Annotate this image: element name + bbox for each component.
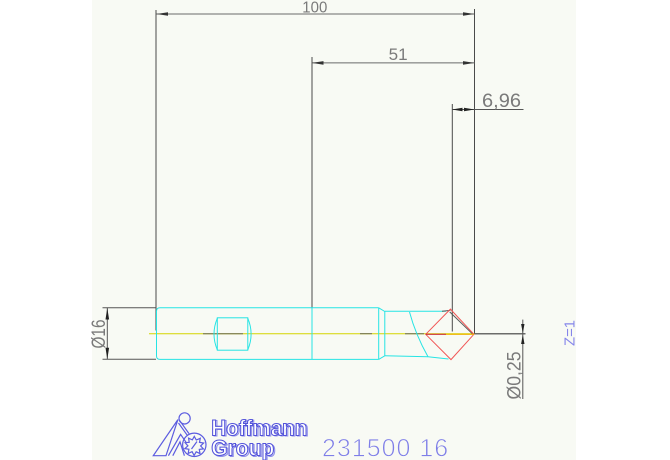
svg-text:Ø0,25: Ø0,25 <box>505 352 526 400</box>
svg-text:100: 100 <box>302 0 327 17</box>
svg-text:Ø16: Ø16 <box>89 320 110 349</box>
svg-text:231500 16: 231500 16 <box>322 435 449 460</box>
svg-text:Z=1: Z=1 <box>561 320 578 346</box>
svg-text:51: 51 <box>389 45 408 64</box>
svg-text:Group: Group <box>211 436 274 460</box>
svg-text:6,96: 6,96 <box>482 91 521 112</box>
